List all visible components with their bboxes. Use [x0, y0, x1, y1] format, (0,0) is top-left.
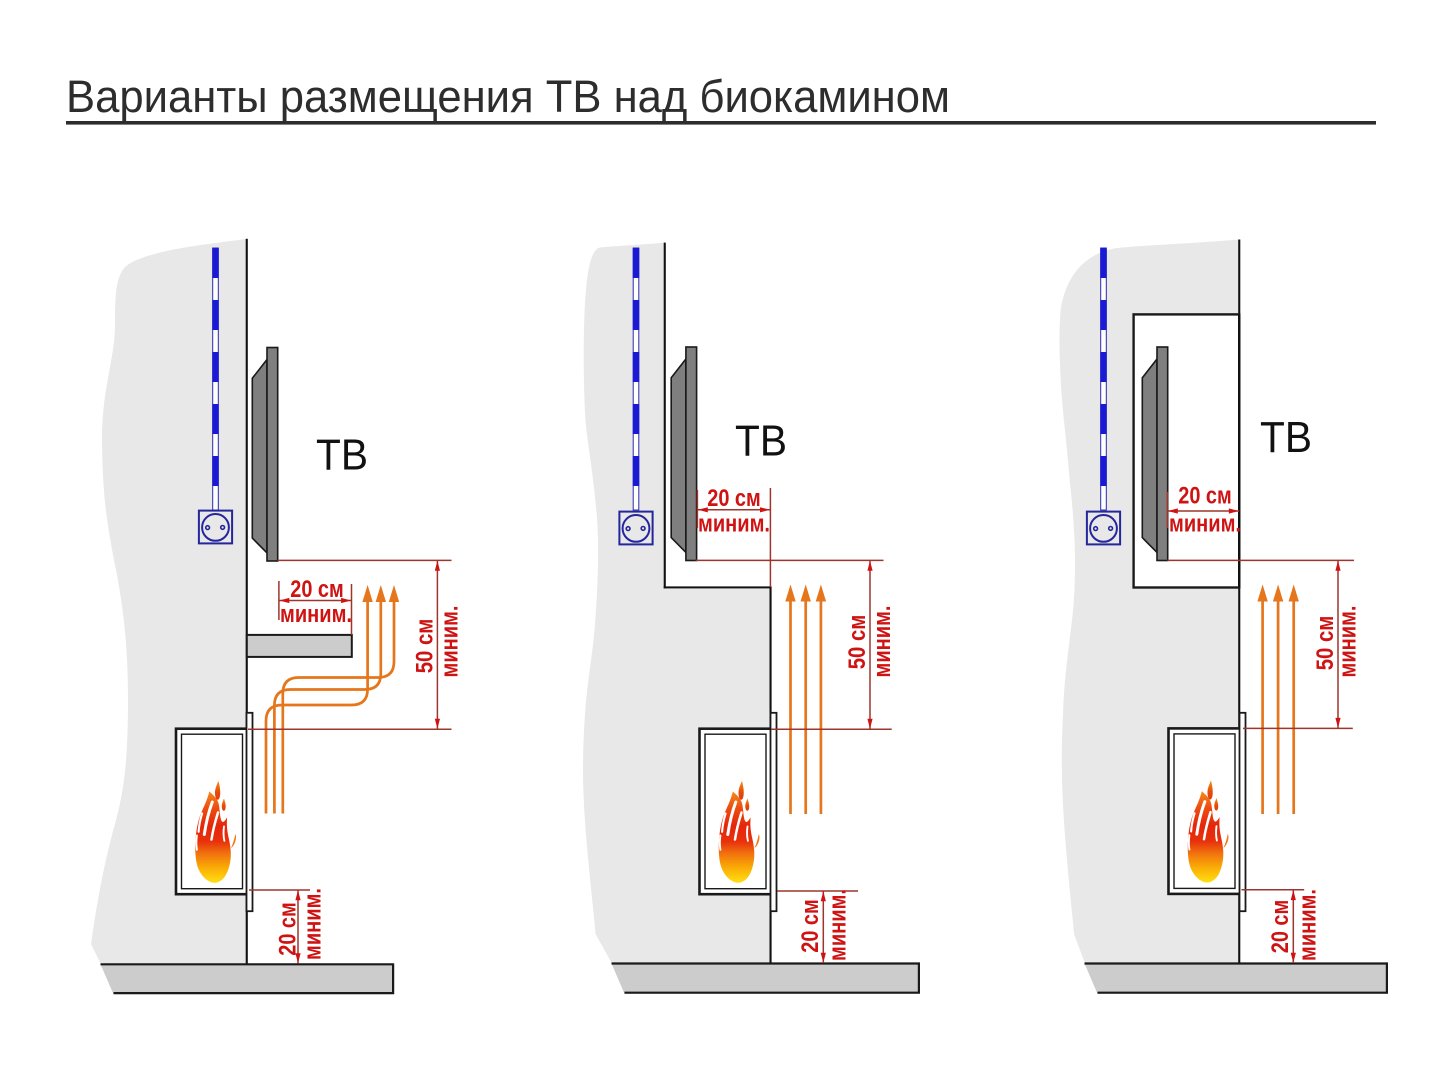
svg-text:ТВ: ТВ — [1260, 413, 1312, 462]
svg-text:20 см: 20 см — [1178, 483, 1232, 510]
svg-text:миним.: миним. — [300, 888, 327, 960]
svg-text:ТВ: ТВ — [735, 417, 787, 466]
svg-text:миним.: миним. — [1169, 511, 1241, 538]
svg-text:50 см: 50 см — [844, 615, 871, 670]
svg-text:20 см: 20 см — [290, 576, 344, 603]
svg-text:миним.: миним. — [1295, 889, 1322, 961]
svg-text:20 см: 20 см — [1267, 900, 1294, 954]
svg-text:миним.: миним. — [698, 511, 770, 538]
svg-text:миним.: миним. — [825, 889, 852, 961]
svg-text:миним.: миним. — [869, 606, 896, 678]
svg-text:20 см: 20 см — [707, 485, 761, 512]
svg-text:ТВ: ТВ — [316, 431, 368, 480]
svg-text:миним.: миним. — [437, 606, 464, 678]
svg-text:20 см: 20 см — [275, 902, 302, 956]
svg-text:Варианты размещения ТВ над био: Варианты размещения ТВ над биокамином — [66, 71, 950, 122]
svg-text:50 см: 50 см — [412, 619, 439, 674]
svg-text:миним.: миним. — [280, 601, 352, 628]
svg-text:20 см: 20 см — [797, 899, 824, 953]
svg-text:миним.: миним. — [1335, 606, 1362, 678]
